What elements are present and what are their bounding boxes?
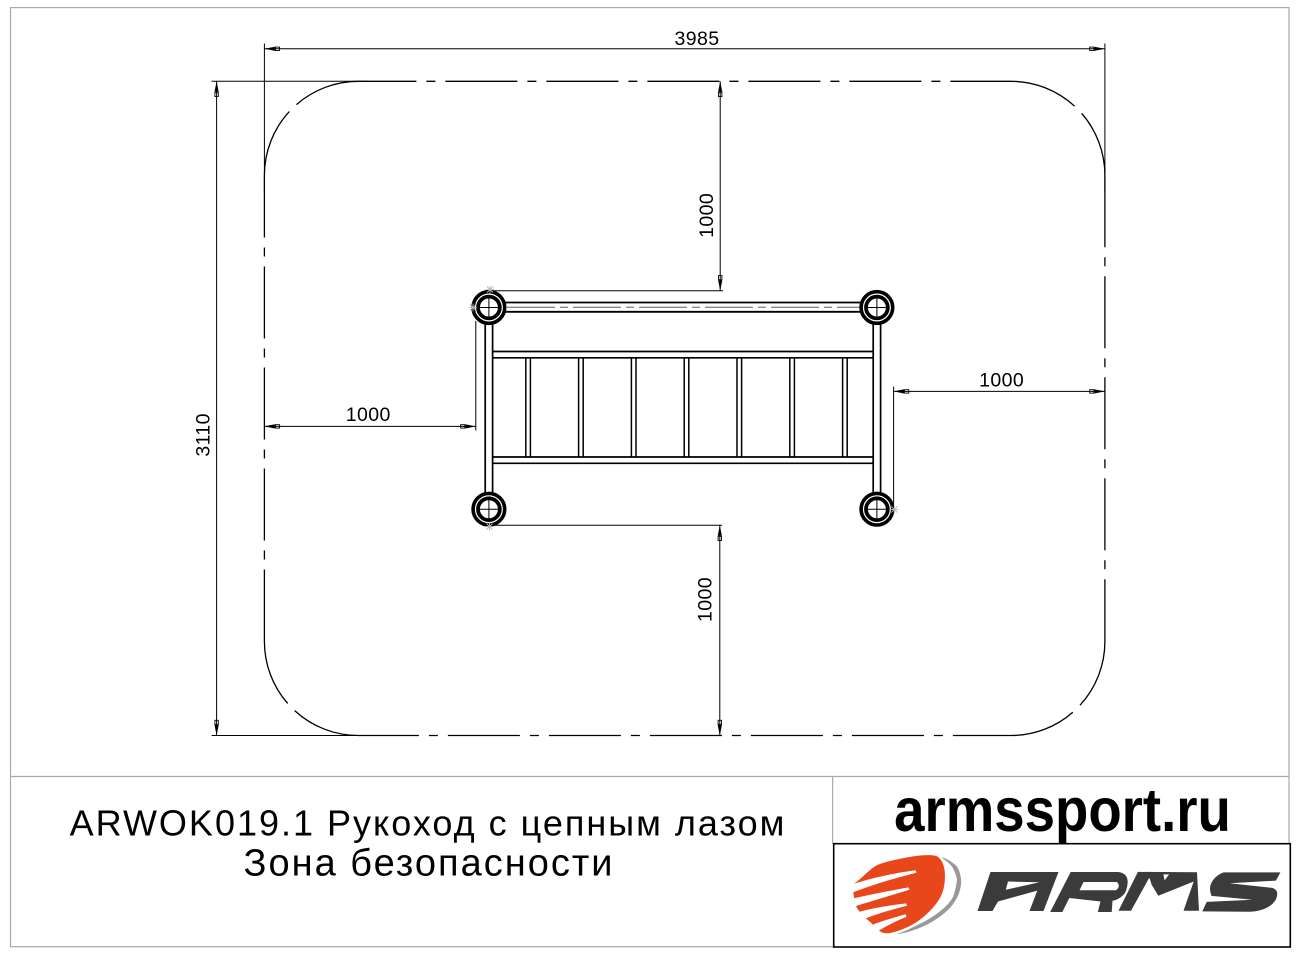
svg-text:1000: 1000 <box>979 370 1024 392</box>
svg-text:3110: 3110 <box>193 413 215 457</box>
svg-text:1000: 1000 <box>695 577 717 622</box>
svg-text:1000: 1000 <box>696 193 718 238</box>
svg-text:armssport.ru: armssport.ru <box>894 777 1231 844</box>
svg-text:ARWOK019.1 Рукоход с цепным ла: ARWOK019.1 Рукоход с цепным лазом <box>70 803 787 844</box>
svg-text:1000: 1000 <box>346 404 391 426</box>
svg-text:3985: 3985 <box>675 28 720 50</box>
svg-text:Зона безопасности: Зона безопасности <box>244 843 615 885</box>
